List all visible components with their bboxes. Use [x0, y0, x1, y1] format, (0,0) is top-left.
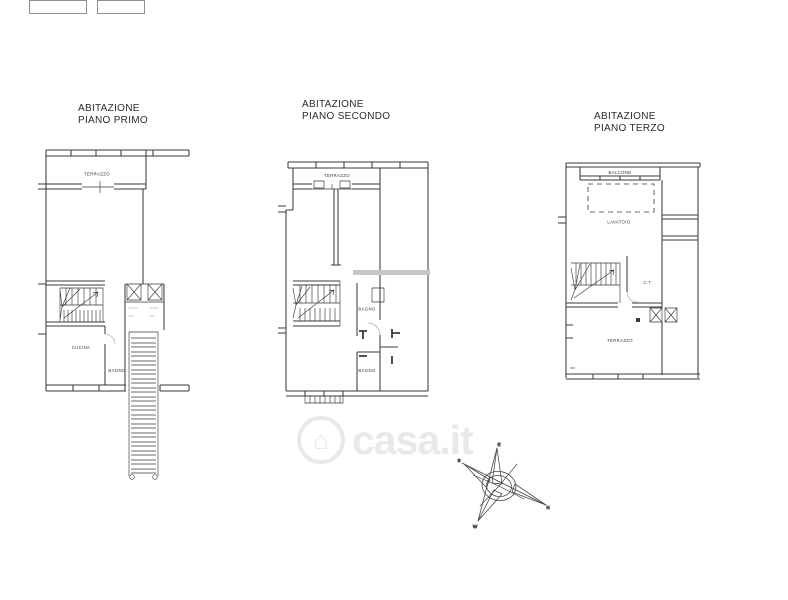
plan-primo-drawing: TERRAZZO CUCINA BAGNO	[38, 150, 189, 479]
room-label-bagno: BAGNO	[108, 368, 126, 373]
plan-terzo-drawing: BALCONE LAVATOIO C.T. TERRAZZO	[558, 163, 700, 379]
floorplan-sheet: ⌂ casa.it ABITAZIONE PIANO PRIMO ABITAZI…	[0, 0, 788, 600]
compass-east-label: E	[497, 442, 500, 447]
room-label-bagno: BAGNO	[358, 307, 376, 312]
room-label-balcone: BALCONE	[609, 170, 632, 175]
plan-secondo-drawing: TERRAZZO BAGNO BAGNO	[278, 162, 430, 403]
room-label-terrazzo: TERRAZZO	[324, 173, 350, 178]
room-label-lavatoio: LAVATOIO	[607, 220, 631, 225]
compass-north-label: N	[546, 505, 549, 510]
room-label-terrazzo: TERRAZZO	[84, 172, 110, 177]
room-label-ct: C.T.	[643, 280, 652, 285]
compass-south-label: S	[457, 458, 460, 463]
compass-rose-icon: N S E W	[457, 442, 549, 529]
room-label-cucina: CUCINA	[72, 345, 91, 350]
floorplans-canvas: TERRAZZO CUCINA BAGNO	[0, 0, 788, 600]
compass-west-label: W	[473, 524, 478, 529]
room-label-bagno: BAGNO	[358, 368, 376, 373]
room-label-terrazzo: TERRAZZO	[607, 338, 633, 343]
